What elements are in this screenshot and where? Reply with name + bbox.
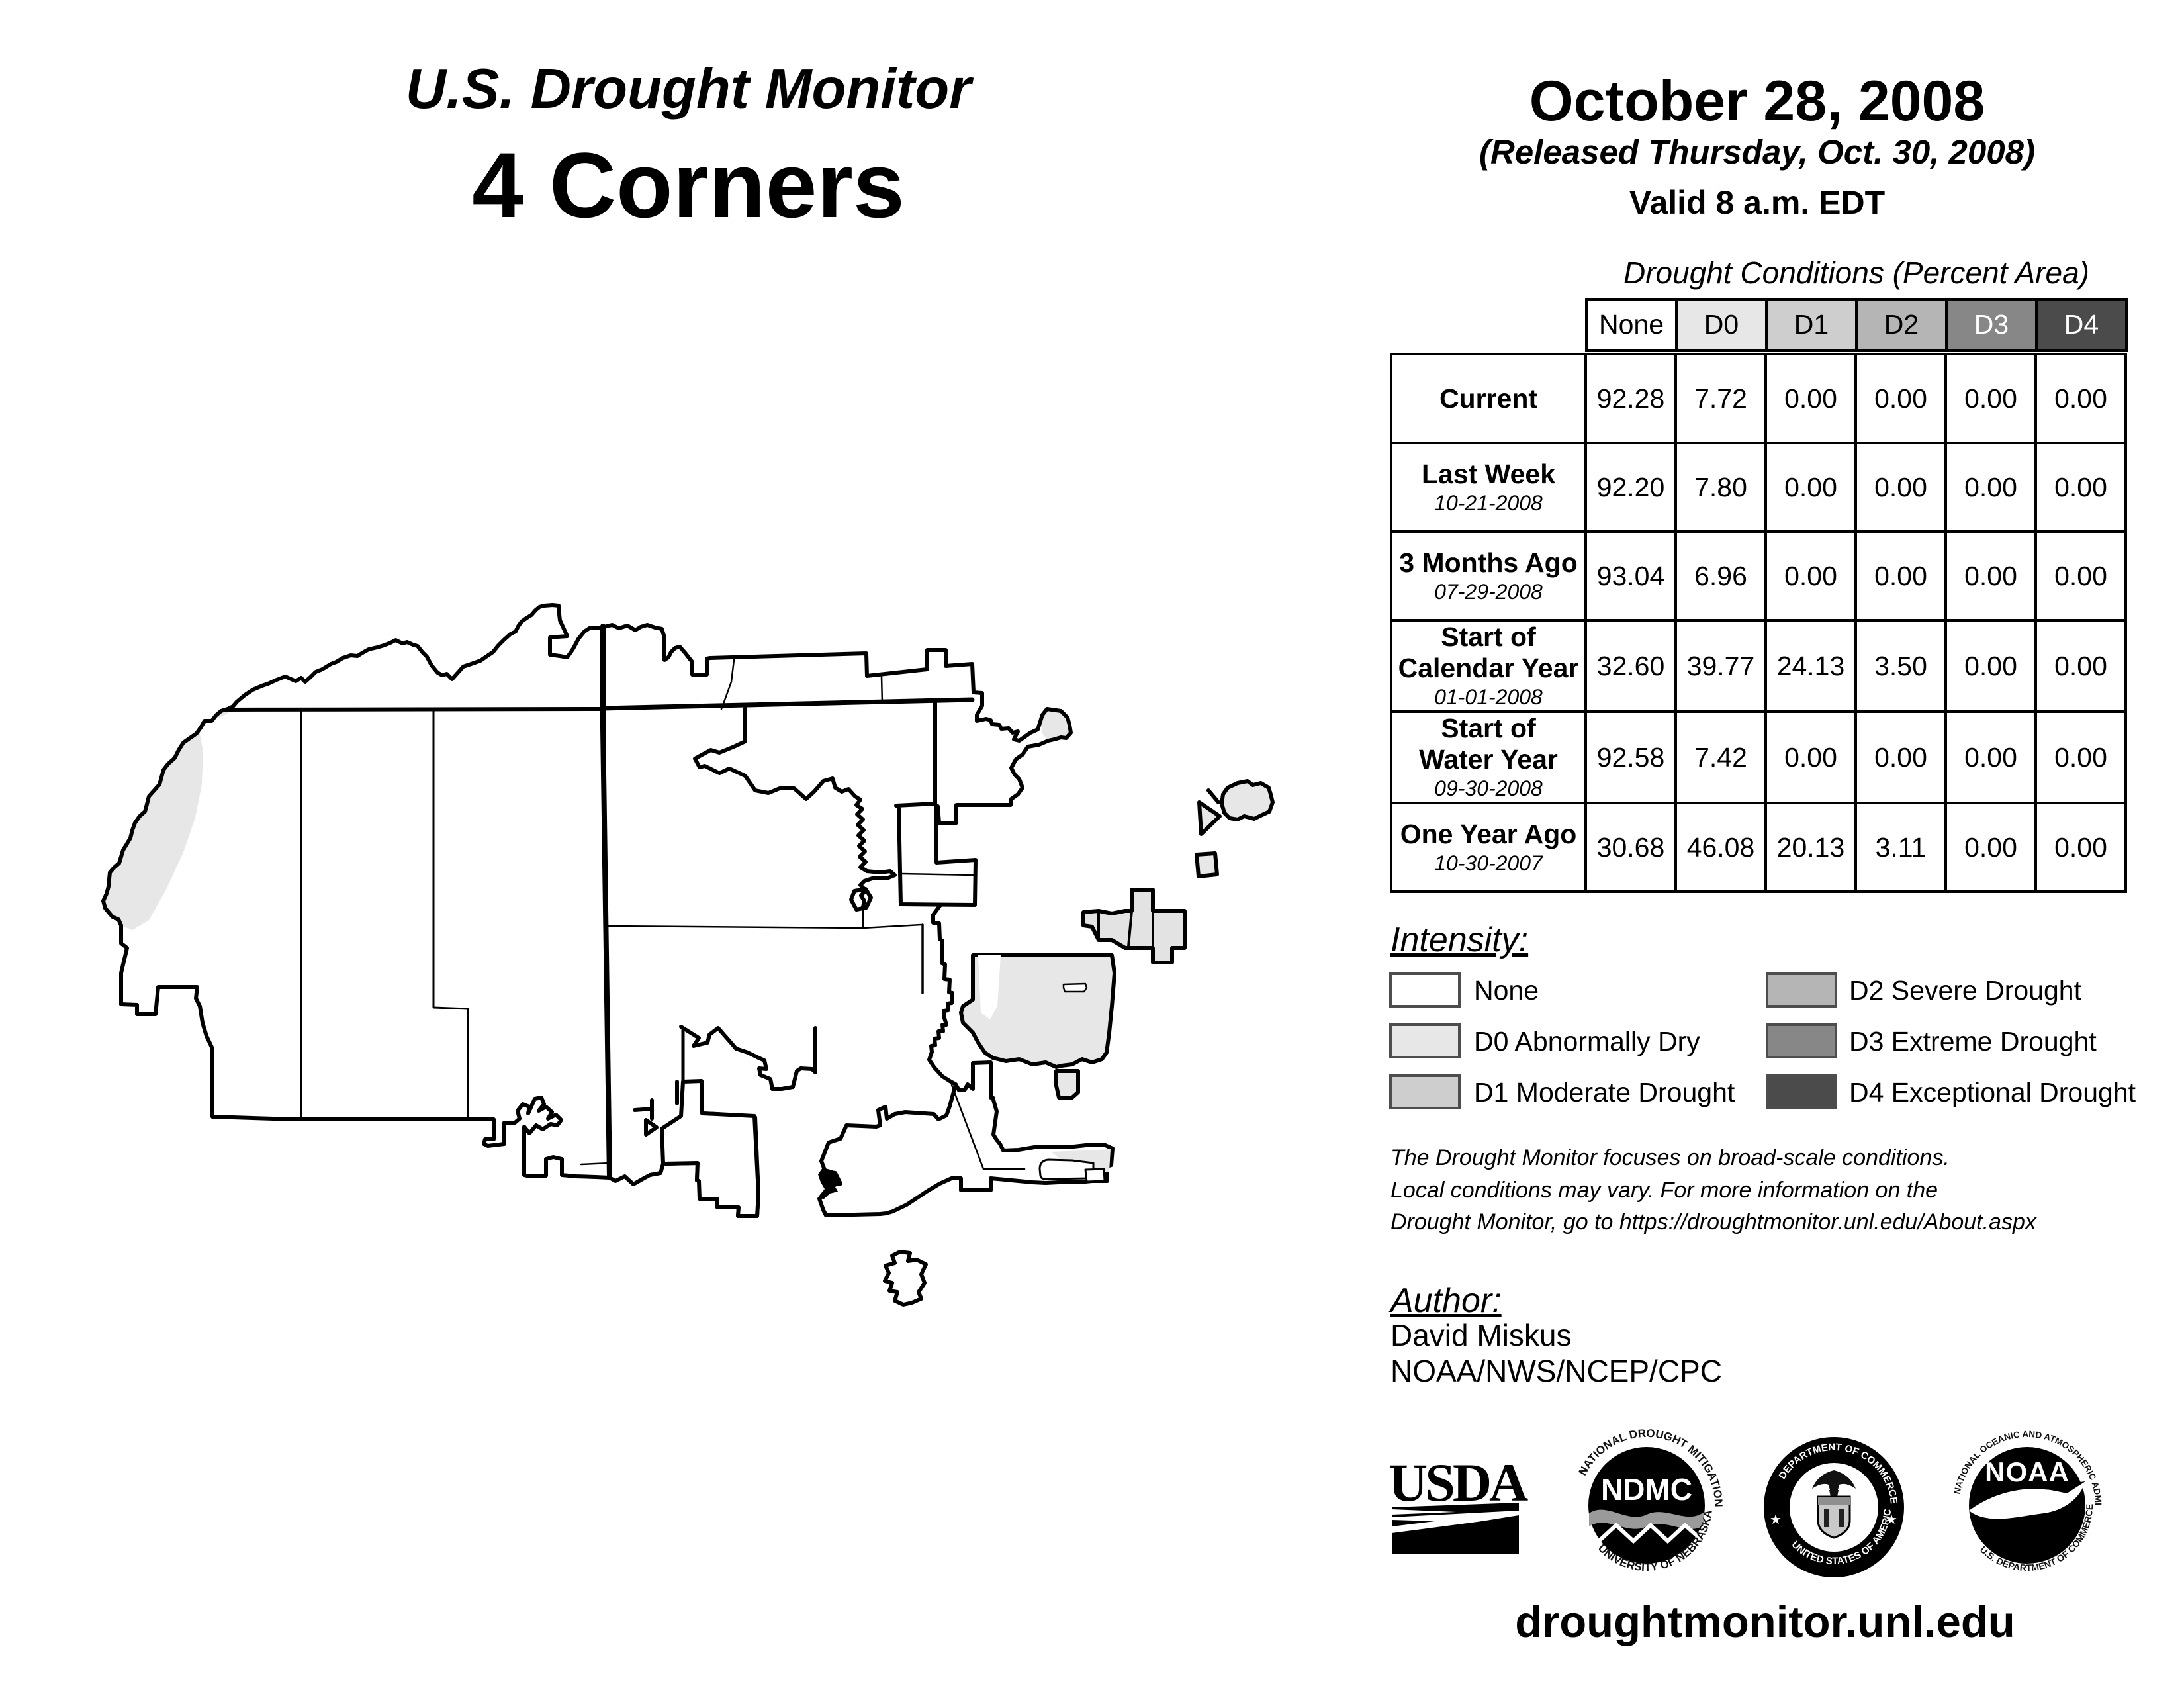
- svg-text:★: ★: [1886, 1513, 1897, 1527]
- svg-text:★: ★: [1770, 1513, 1782, 1527]
- svg-text:NDMC: NDMC: [1601, 1472, 1692, 1507]
- svg-text:NOAA: NOAA: [1985, 1456, 2070, 1487]
